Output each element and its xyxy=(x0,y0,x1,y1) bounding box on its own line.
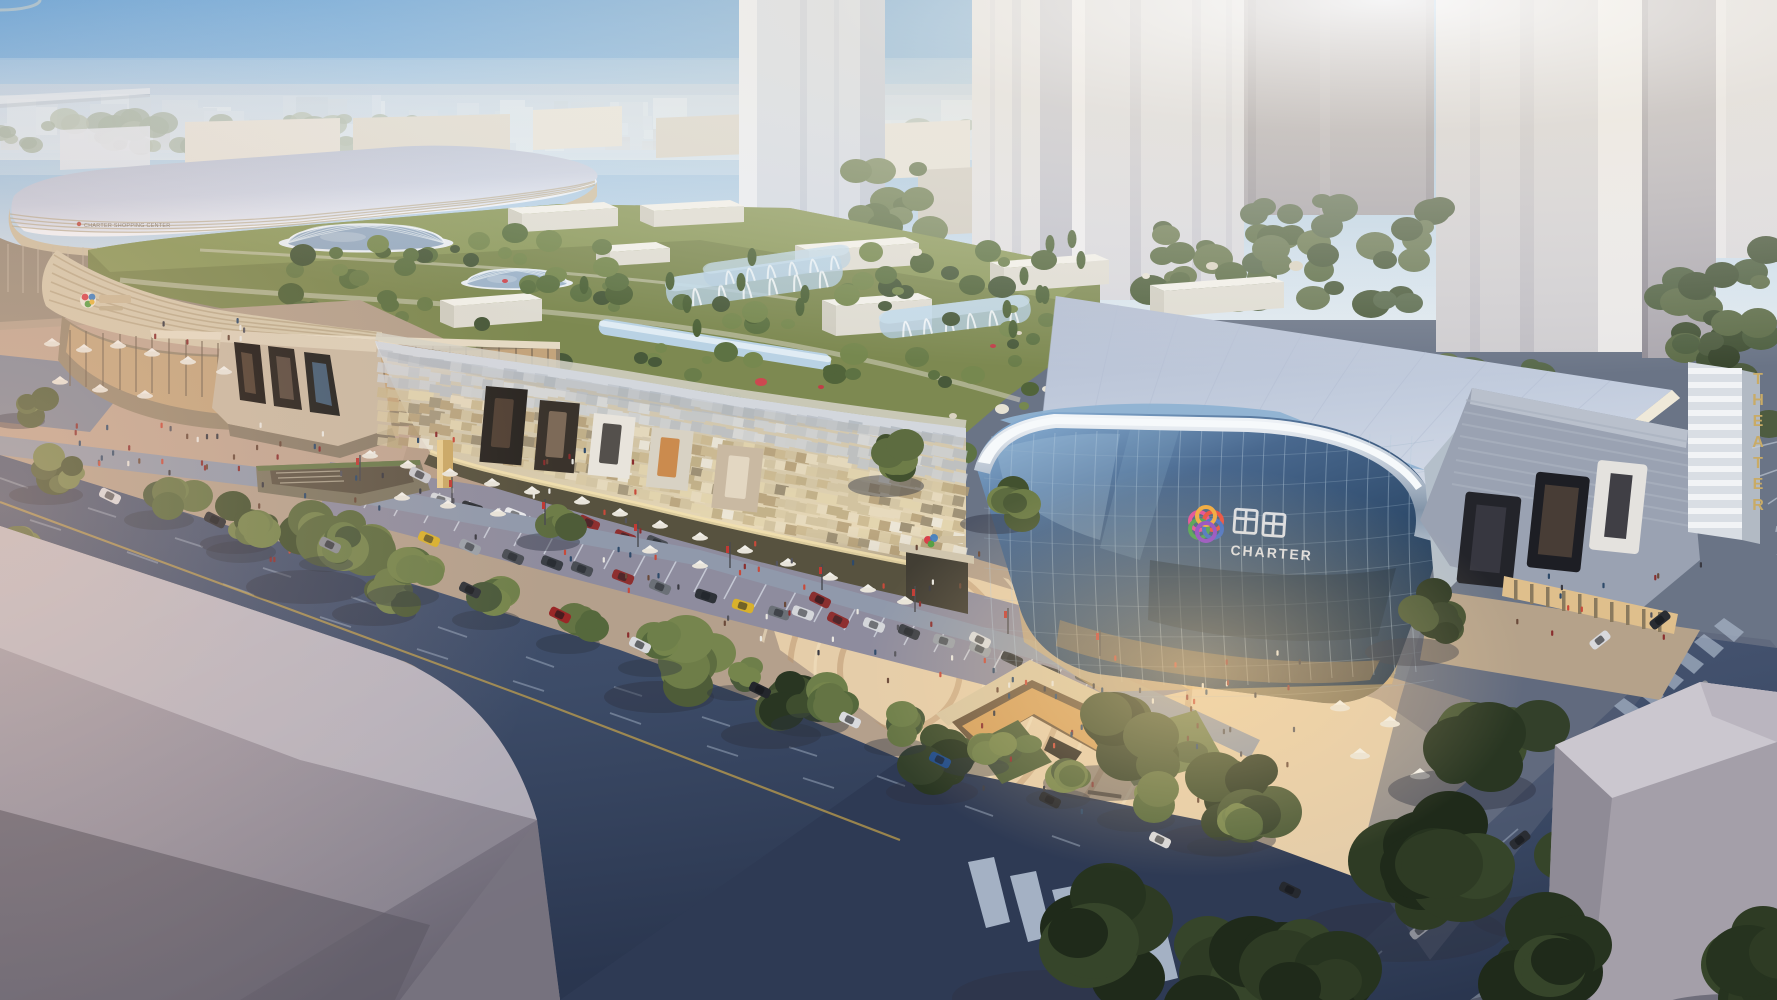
svg-text:A: A xyxy=(1752,434,1764,451)
svg-text:T: T xyxy=(1753,455,1763,472)
svg-text:R: R xyxy=(1752,497,1764,514)
svg-text:E: E xyxy=(1753,476,1764,493)
